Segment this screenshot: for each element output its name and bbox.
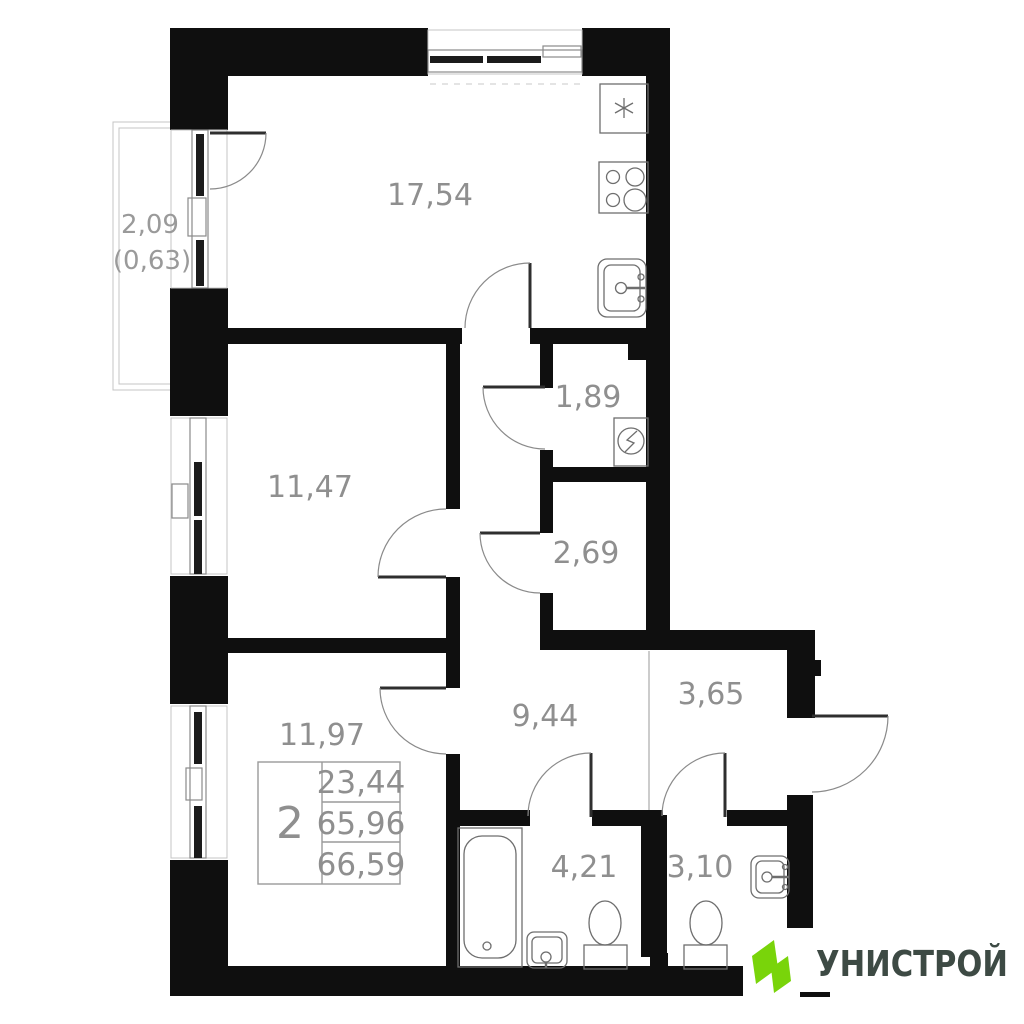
label-kitchen-living: 17,54 — [387, 178, 473, 213]
electrical-panel-icon — [614, 418, 648, 466]
label-hallway: 1,89 — [555, 380, 622, 415]
label-bathroom: 4,21 — [551, 850, 618, 885]
entrance-door — [812, 716, 888, 792]
room-b-window — [171, 706, 227, 858]
label-corridor: 9,44 — [512, 699, 579, 734]
brand-logo: УНИСТРОЙ — [752, 940, 1008, 993]
kitchen-door — [465, 263, 530, 328]
hallway-door — [483, 387, 545, 449]
stamp-rooms-count: 2 — [276, 798, 304, 849]
wc-door — [662, 753, 725, 817]
bathroom-door — [528, 753, 591, 817]
stove-icon — [599, 162, 648, 213]
floor-plan: 2 23,44 65,96 66,59 17,54 11,47 1,89 2,6… — [0, 0, 1024, 1024]
bathroom-toilet-icon — [584, 901, 627, 969]
bathroom-washbasin-icon — [527, 932, 567, 968]
fridge-icon — [600, 84, 648, 133]
balcony-door-swing — [210, 133, 266, 189]
bathtub-icon — [458, 828, 522, 967]
label-balcony-weighted: (0,63) — [113, 246, 191, 276]
logo-brand-text: УНИСТРОЙ — [816, 943, 1008, 985]
label-room-a: 11,47 — [267, 470, 353, 505]
label-storage: 2,69 — [553, 536, 620, 571]
stamp-apartment-area: 65,96 — [317, 806, 406, 842]
info-stamp: 2 23,44 65,96 66,59 — [258, 762, 405, 884]
floor-plan-page: 2 23,44 65,96 66,59 17,54 11,47 1,89 2,6… — [0, 0, 1024, 1024]
kitchen-window — [428, 30, 582, 84]
room-b-door — [380, 688, 446, 754]
wc-washbasin-icon — [751, 856, 789, 898]
stamp-total-area: 66,59 — [317, 847, 406, 883]
label-wc: 3,10 — [667, 850, 734, 885]
storage-door — [480, 533, 540, 593]
stamp-living-area: 23,44 — [317, 765, 406, 801]
label-balcony-area: 2,09 — [121, 210, 179, 240]
kitchen-sink-icon — [598, 259, 646, 317]
room-a-door — [378, 509, 446, 577]
label-room-b: 11,97 — [279, 718, 365, 753]
room-a-window — [171, 418, 227, 574]
label-entry-hall: 3,65 — [678, 677, 745, 712]
wc-toilet-icon — [684, 901, 727, 969]
